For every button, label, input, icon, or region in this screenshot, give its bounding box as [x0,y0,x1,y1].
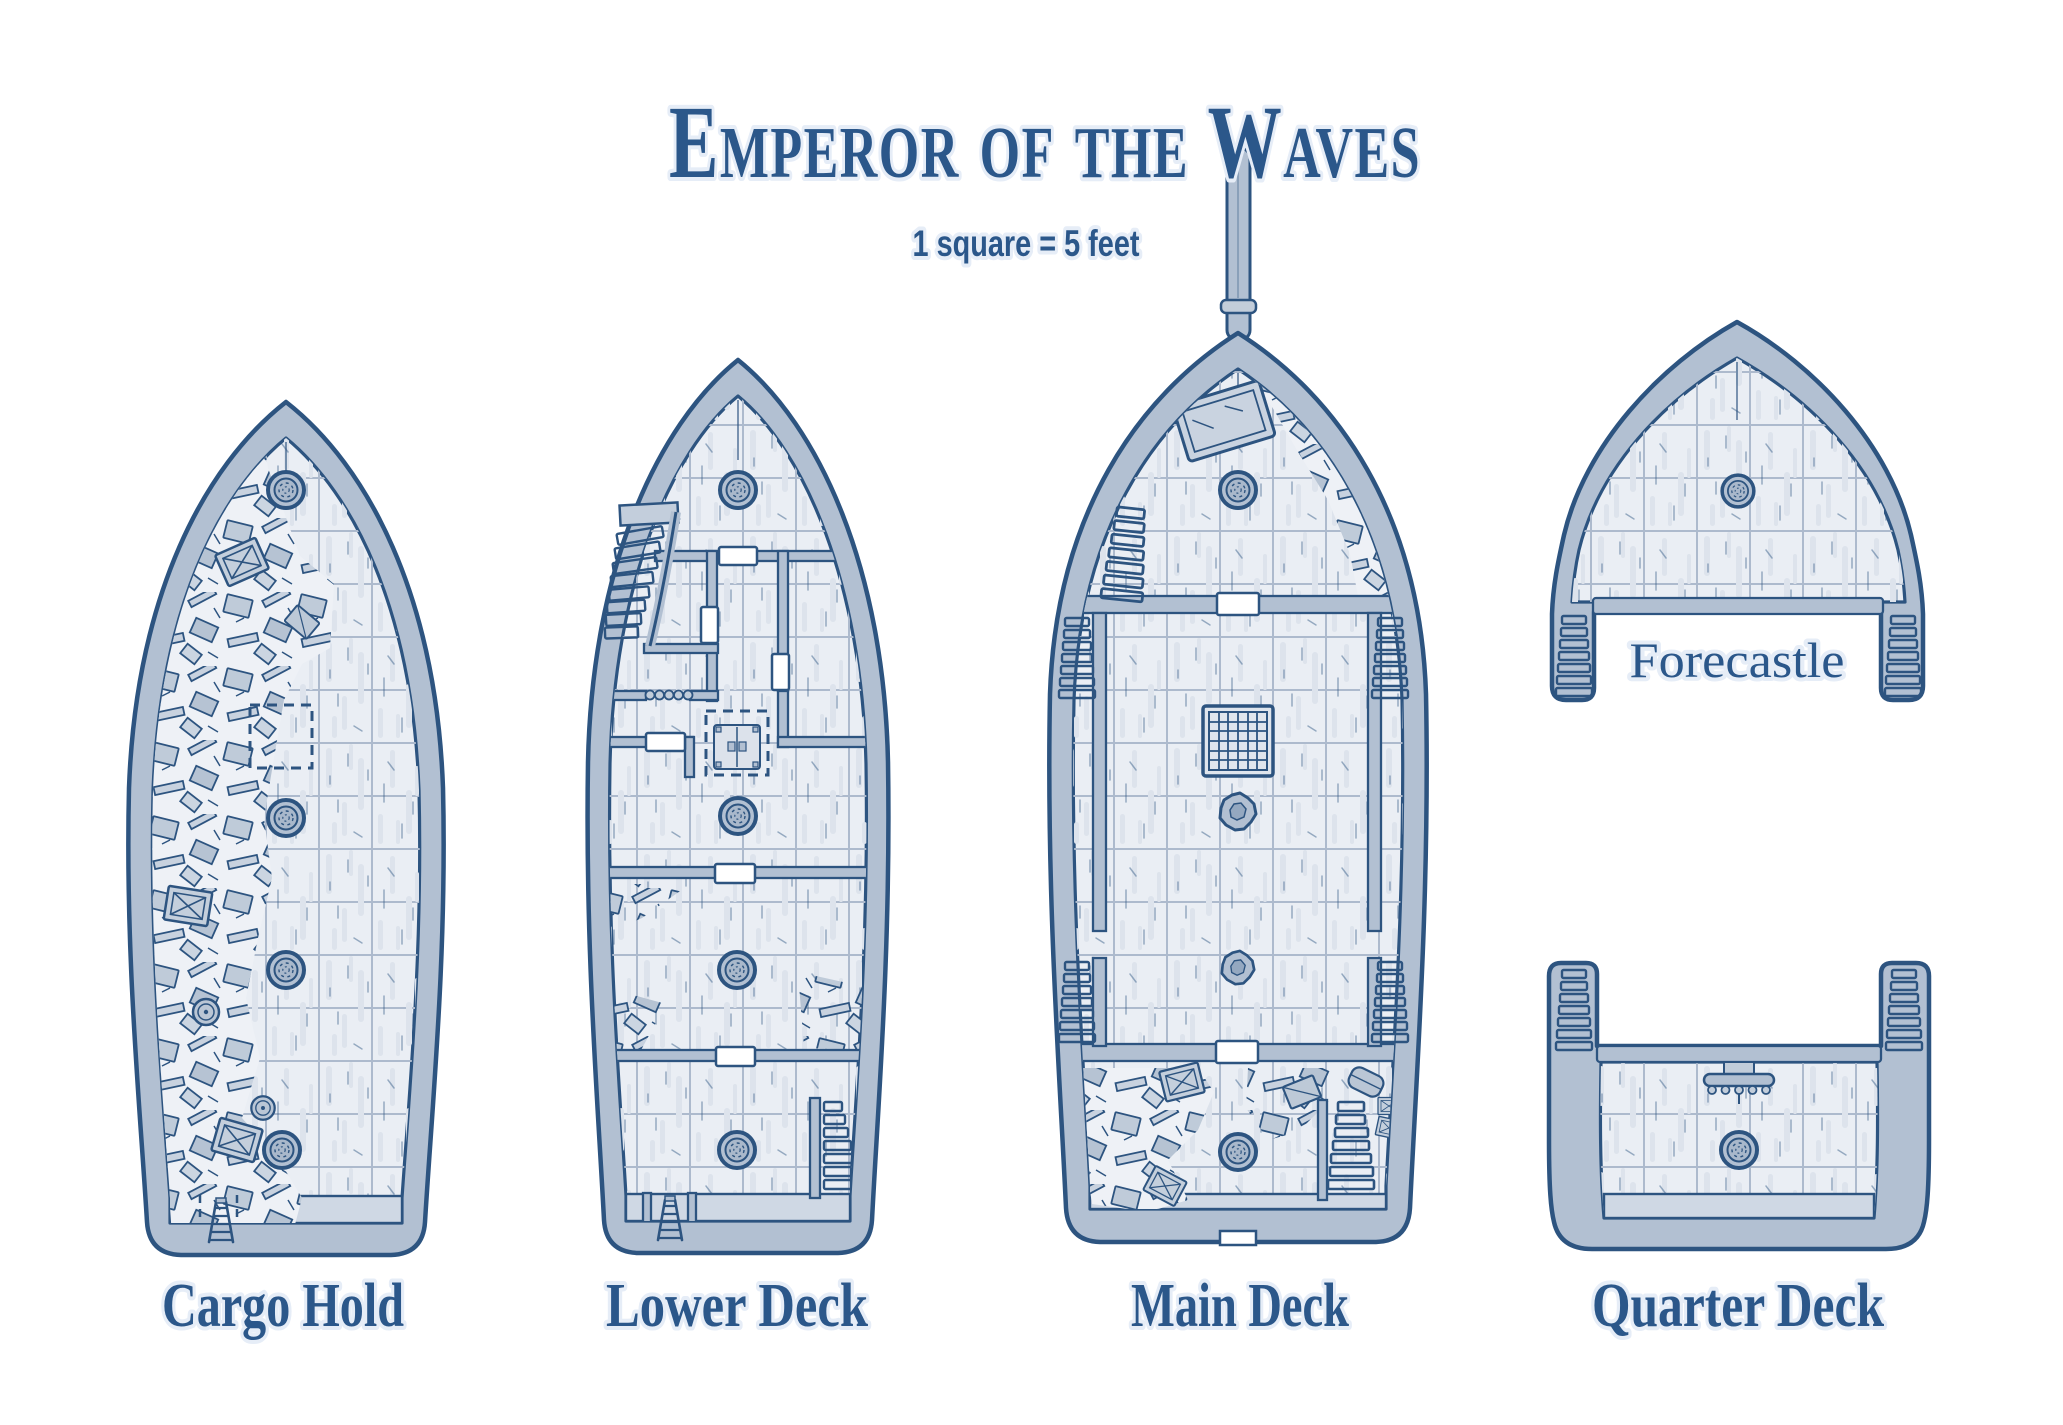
mast-icon [719,1132,755,1168]
mast-icon [268,952,304,988]
mast-icon [264,1132,300,1168]
stair-sidewall [1318,1100,1327,1200]
deck-label-quarter-deck: Quarter Deck [1592,1272,1884,1340]
quarter-railing [1597,1046,1881,1062]
crate-icon [164,886,213,926]
deck-label-main-deck: Main Deck [1131,1272,1349,1340]
deck-label-cargo-hold: Cargo Hold [162,1272,404,1340]
ship-map-canvas: Emperor of the Waves 1 square = 5 feet C… [0,0,2063,1425]
forecastle-railing [1593,598,1883,614]
quarter-stern-planks [1604,1194,1874,1218]
door-opening [1217,593,1259,615]
deck-plan-lower-deck [575,340,905,1270]
stair-sidewall [1093,958,1106,1046]
broken-mast-icon [1222,951,1254,984]
mast-icon [1721,1132,1757,1168]
mast-icon [720,798,756,834]
ship-map-page: Emperor of the Waves 1 square = 5 feet C… [0,0,2063,1425]
mast-icon [268,800,304,836]
cargo-grate-icon [1203,706,1273,776]
deck-label-forecastle: Forecastle [1630,632,1845,688]
map-scale-note: 1 square = 5 feet [913,223,1140,264]
baluster-balls [646,691,693,700]
mast-icon [720,472,756,508]
deck-label-lower-deck: Lower Deck [606,1272,868,1340]
mast-icon [1220,472,1256,508]
mast-icon [1722,475,1754,507]
stern-notch [1220,1231,1256,1245]
mast-icon [268,472,304,508]
map-title: Emperor of the Waves [669,85,1421,200]
door-opening [1216,1041,1258,1063]
deck-plan-quarter-deck [1540,963,1940,1249]
deck-plan-cargo-hold [120,380,460,1280]
barrel-icon [193,999,219,1025]
barrel-icon [251,1096,274,1119]
deck-plan-main-deck [1040,148,1440,1250]
broken-mast-icon [1220,793,1256,830]
mast-icon [719,952,755,988]
gangway-rail [1093,613,1106,931]
mast-icon [1220,1134,1256,1170]
